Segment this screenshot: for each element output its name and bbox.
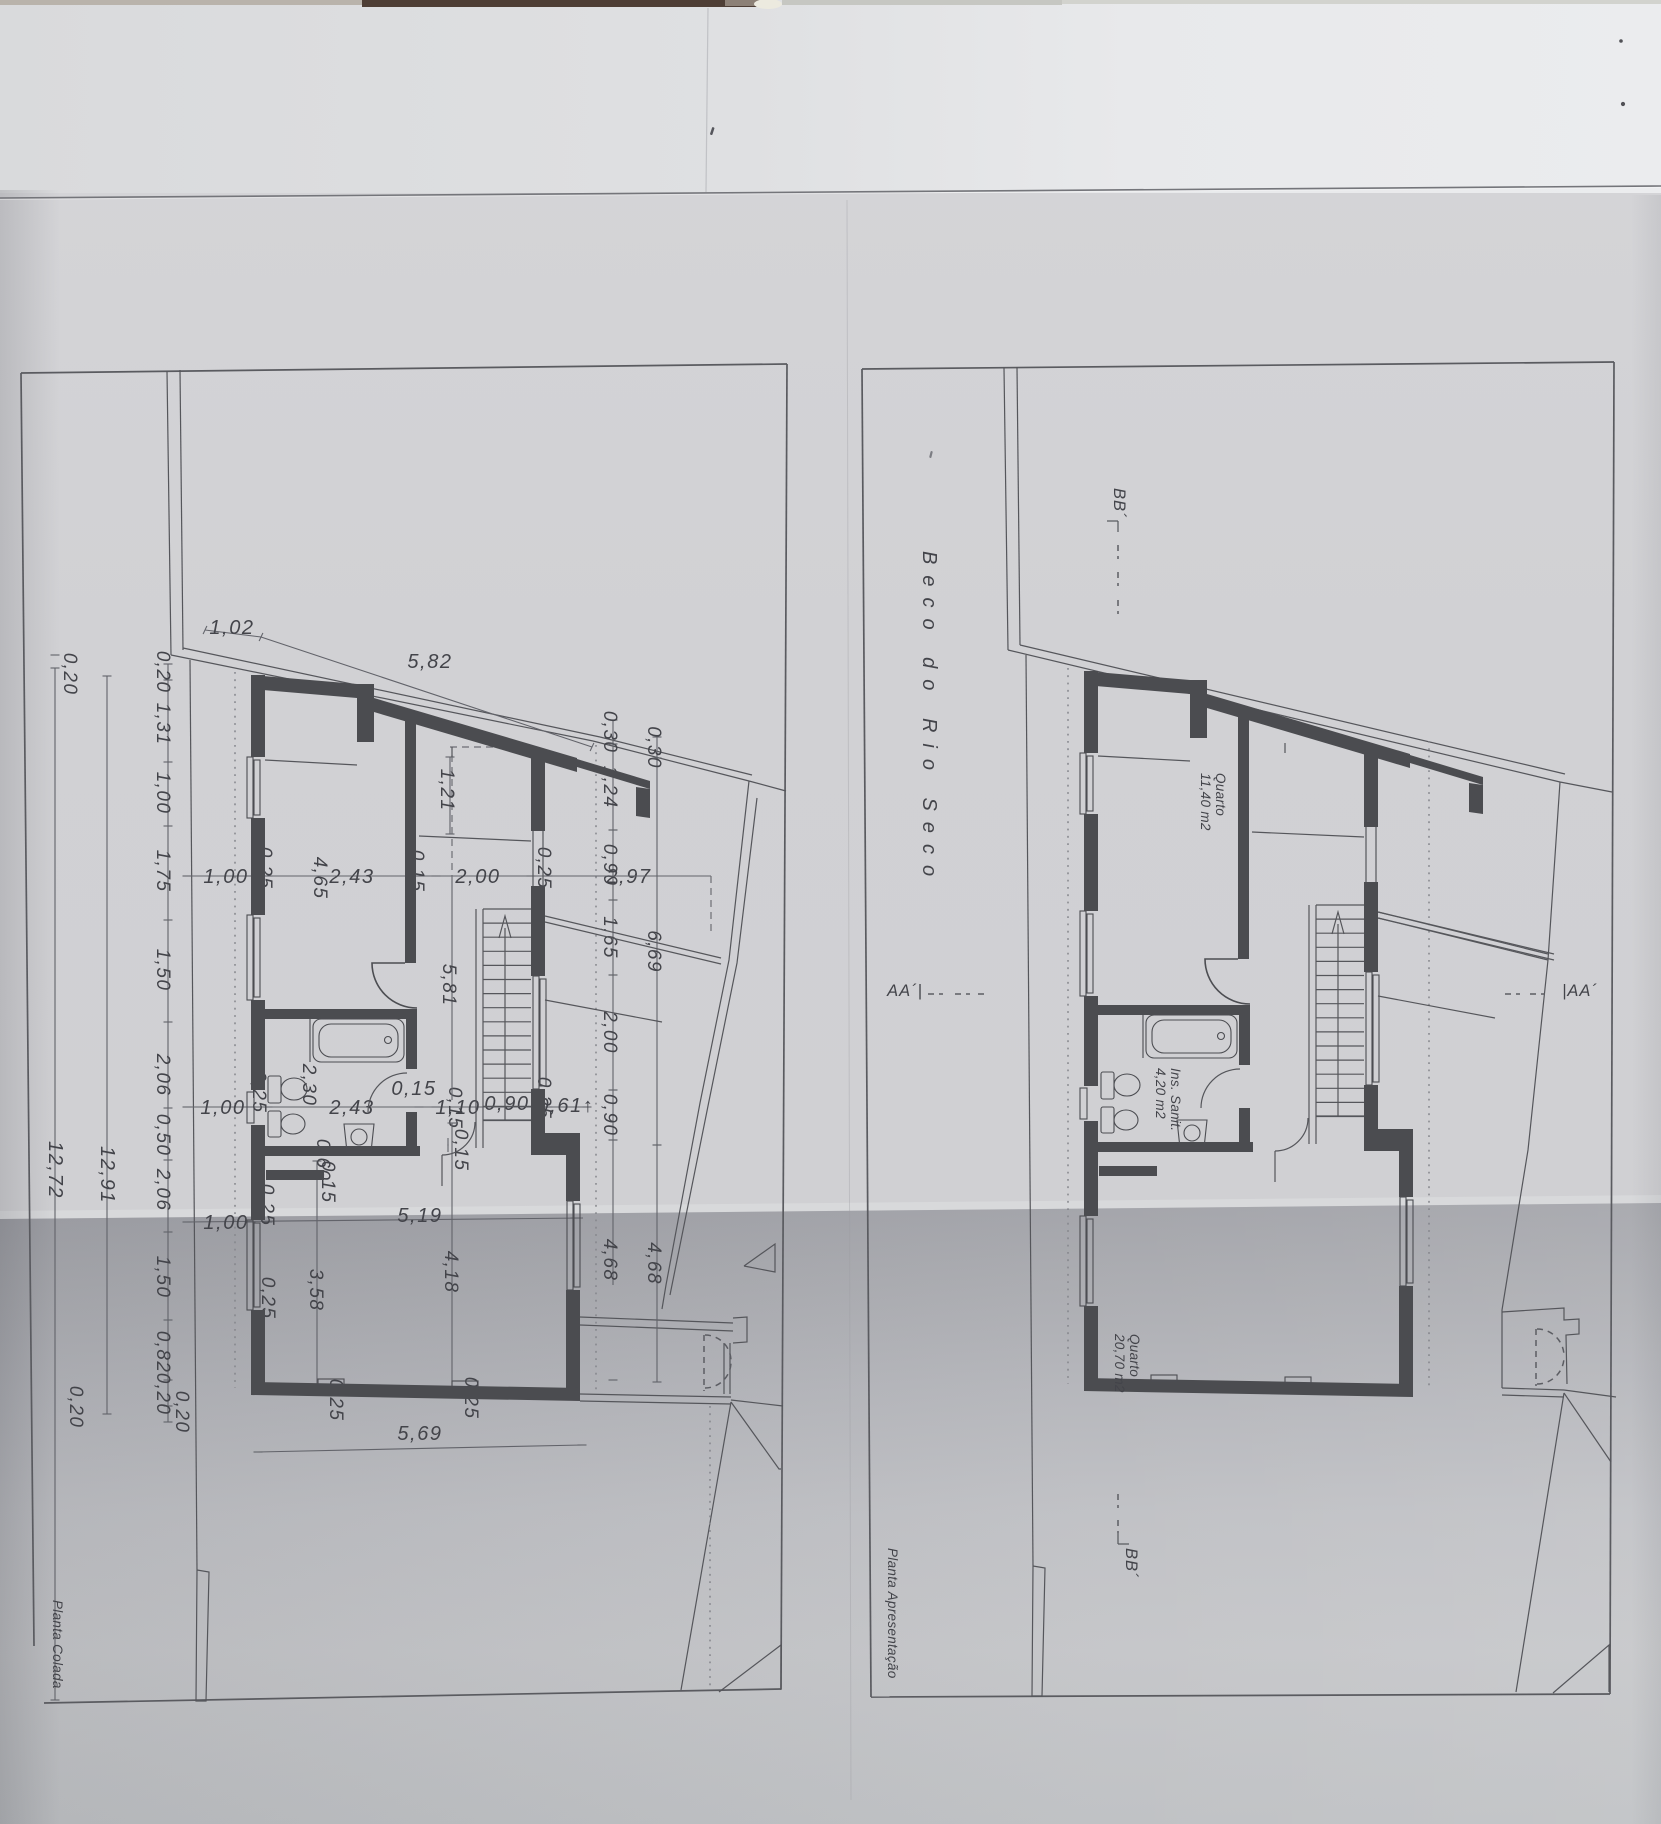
svg-text:5,81: 5,81: [438, 964, 459, 1007]
svg-text:0,20: 0,20: [65, 1386, 86, 1429]
svg-text:|AA´: |AA´: [1562, 982, 1598, 1000]
svg-text:Beco do Rio Seco: Beco do Rio Seco: [918, 551, 940, 887]
svg-text:2,00: 2,00: [599, 1010, 620, 1054]
svg-text:1,00: 1,00: [200, 1097, 245, 1119]
svg-text:0,82: 0,82: [152, 1331, 173, 1374]
svg-text:12,72: 12,72: [44, 1141, 66, 1199]
svg-text:5,69: 5,69: [397, 1423, 442, 1445]
svg-text:BB´: BB´: [1122, 1548, 1140, 1579]
svg-text:1,02: 1,02: [209, 617, 254, 639]
svg-text:5,82: 5,82: [407, 651, 452, 673]
svg-text:0,50: 0,50: [152, 1114, 173, 1157]
svg-text:0,20: 0,20: [171, 1391, 192, 1434]
svg-text:1,10: 1,10: [435, 1097, 480, 1119]
svg-text:0,20: 0,20: [59, 653, 80, 696]
svg-text:1,00: 1,00: [203, 866, 248, 888]
svg-text:4,65: 4,65: [309, 857, 330, 900]
svg-text:2,06: 2,06: [152, 1168, 173, 1212]
svg-text:1,50: 1,50: [152, 949, 173, 992]
svg-text:2,00: 2,00: [454, 866, 500, 888]
svg-text:3,58: 3,58: [305, 1269, 326, 1312]
svg-text:1,75: 1,75: [152, 850, 173, 893]
svg-text:0,30: 0,30: [643, 726, 664, 769]
svg-text:2,30: 2,30: [298, 1063, 319, 1107]
svg-text:1,00: 1,00: [152, 772, 173, 815]
svg-text:0,30: 0,30: [599, 711, 620, 754]
svg-text:Planta Apresentação: Planta Apresentação: [885, 1548, 900, 1679]
svg-text:2,06: 2,06: [152, 1053, 173, 1097]
svg-text:0,20: 0,20: [152, 651, 173, 694]
svg-text:1,50: 1,50: [152, 1256, 173, 1299]
svg-text:12,91: 12,91: [96, 1146, 118, 1204]
svg-text:2,43: 2,43: [328, 866, 374, 888]
svg-text:0,15: 0,15: [391, 1078, 436, 1100]
svg-text:1,00: 1,00: [203, 1212, 248, 1234]
svg-text:0,20: 0,20: [152, 1373, 173, 1416]
svg-text:4,18: 4,18: [440, 1251, 461, 1294]
svg-text:6,69: 6,69: [643, 930, 664, 973]
svg-text:2,97: 2,97: [605, 866, 651, 888]
svg-text:4,68: 4,68: [599, 1239, 620, 1282]
svg-text:0,90: 0,90: [599, 1094, 620, 1137]
svg-text:1,21: 1,21: [436, 769, 457, 812]
svg-text:5,19: 5,19: [397, 1205, 442, 1227]
svg-text:0,15: 0,15: [317, 1161, 338, 1204]
svg-text:1,31: 1,31: [152, 703, 173, 746]
svg-text:BB´: BB´: [1110, 488, 1128, 519]
svg-text:0,90: 0,90: [484, 1093, 529, 1115]
svg-text:4,68: 4,68: [643, 1242, 664, 1285]
svg-text:AA´|: AA´|: [886, 982, 923, 1000]
svg-text:Planta Colada: Planta Colada: [50, 1600, 65, 1689]
